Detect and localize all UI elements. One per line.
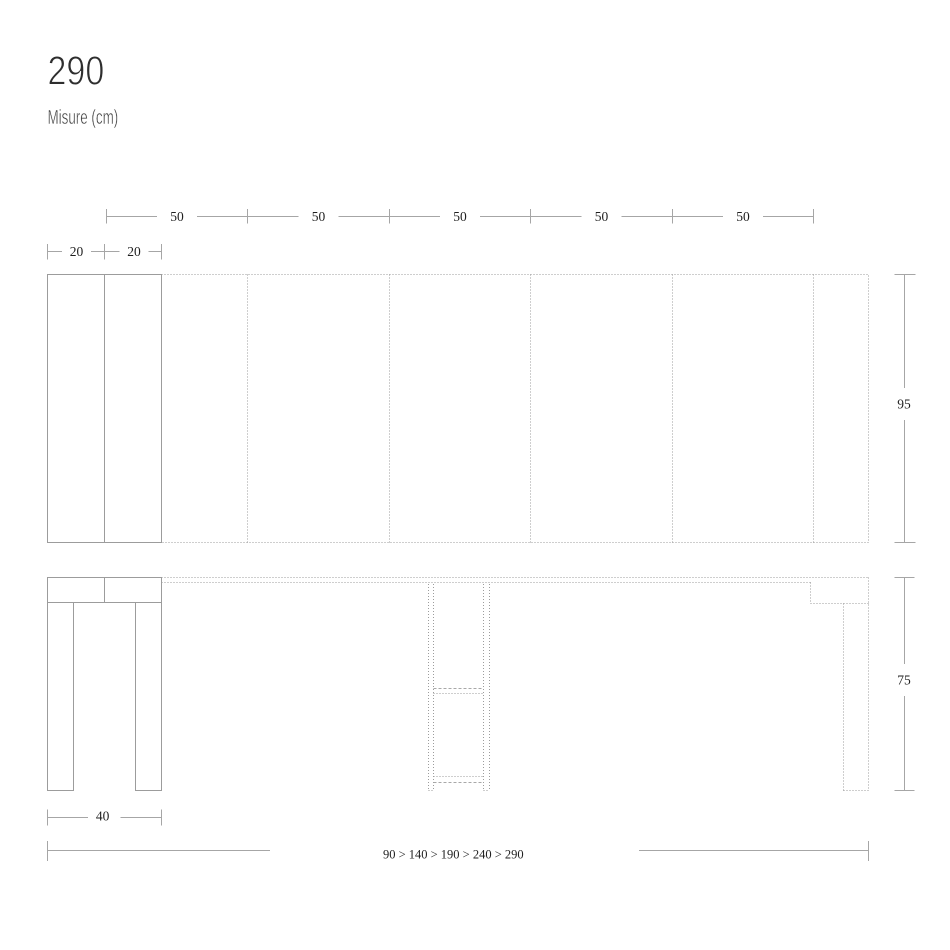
svg-text:90 > 140 > 190 > 240 > 290: 90 > 140 > 190 > 240 > 290 xyxy=(383,848,524,862)
svg-text:20: 20 xyxy=(70,244,84,259)
svg-text:50: 50 xyxy=(170,209,184,224)
svg-text:50: 50 xyxy=(312,209,326,224)
svg-text:50: 50 xyxy=(453,209,467,224)
svg-text:290: 290 xyxy=(48,48,105,93)
svg-text:50: 50 xyxy=(736,209,750,224)
svg-text:95: 95 xyxy=(897,397,911,412)
svg-text:50: 50 xyxy=(595,209,609,224)
svg-text:75: 75 xyxy=(897,673,911,688)
svg-text:20: 20 xyxy=(127,244,141,259)
svg-text:Misure (cm): Misure (cm) xyxy=(48,106,119,128)
svg-text:40: 40 xyxy=(96,809,110,824)
